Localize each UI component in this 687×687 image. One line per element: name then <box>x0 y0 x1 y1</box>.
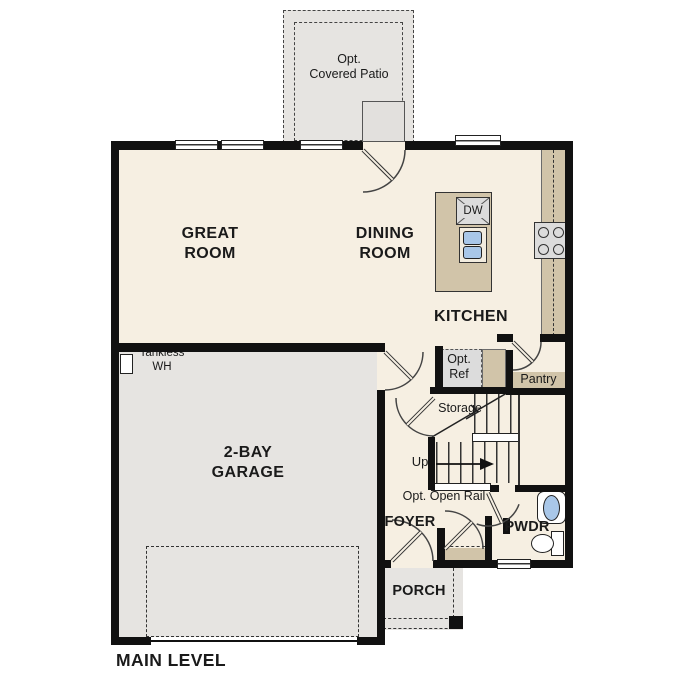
tankless-wh-icon <box>120 354 133 374</box>
wall-ref-left <box>435 346 443 389</box>
kitchen-label: KITCHEN <box>428 307 514 327</box>
closet-door <box>445 511 483 549</box>
floor-plan: Opt. Covered Patio DW Opt. Ref Pantry <box>0 0 687 687</box>
wall-garage-top <box>111 343 385 352</box>
sink-bowl <box>543 495 560 521</box>
wall-pantry-bottom <box>506 388 573 395</box>
pantry-counter <box>482 349 506 389</box>
gap-garage-door <box>377 352 385 390</box>
wall-pwdr-top <box>515 485 573 492</box>
dishwasher-icon: DW <box>456 197 490 225</box>
patio-landing <box>362 101 405 142</box>
window <box>221 140 264 150</box>
window <box>175 140 218 150</box>
sink-basin <box>463 246 482 259</box>
wall-pantry-left <box>506 350 513 392</box>
wall-right <box>565 141 573 568</box>
patio-door <box>363 150 405 192</box>
burner-icon <box>538 244 549 255</box>
garage-door-line <box>148 640 359 642</box>
dishwasher-label: DW <box>461 204 485 218</box>
wall-garage-bottom-right <box>357 637 385 645</box>
storage-label: Storage <box>432 401 488 416</box>
patio-label: Opt. Covered Patio <box>288 52 410 83</box>
opt-open-rail-label: Opt. Open Rail <box>396 489 492 504</box>
porch-post <box>449 616 463 629</box>
wall-front-left <box>377 560 391 568</box>
wall-ref-bottom <box>430 387 510 394</box>
burner-icon <box>538 227 549 238</box>
porch-roof-dash-v <box>453 568 454 618</box>
burner-icon <box>553 244 564 255</box>
wall-garage-bottom-left <box>111 637 151 645</box>
storage-door <box>396 398 434 436</box>
kitchen-sink-icon <box>459 227 487 263</box>
pantry-door <box>513 342 541 370</box>
great-room-label: GREAT ROOM <box>150 224 270 263</box>
toilet-bowl <box>531 534 554 553</box>
porch-roof-dash-h1 <box>383 618 453 619</box>
window <box>497 559 531 569</box>
plan-title: MAIN LEVEL <box>116 650 276 671</box>
dining-room-label: DINING ROOM <box>325 224 445 263</box>
garage-entry-door <box>385 352 423 390</box>
gap-front-door <box>391 560 433 568</box>
garage-door-outline <box>146 546 359 637</box>
up-arrow-icon <box>432 455 498 473</box>
wall-rail-stub <box>490 485 499 492</box>
wall-stair-left <box>428 437 435 490</box>
foyer-label: FOYER <box>384 514 436 532</box>
porch-label: PORCH <box>390 583 448 601</box>
wall-left <box>111 141 119 645</box>
sink-basin <box>463 231 482 245</box>
window <box>455 135 501 146</box>
garage-label: 2-BAY GARAGE <box>193 443 303 482</box>
stair-edge-line <box>518 390 520 486</box>
gap-patio-door <box>363 141 405 150</box>
wall-pantry-top-left <box>497 334 513 342</box>
window <box>300 140 343 150</box>
wall-foyer-closet <box>437 528 445 568</box>
powder-label: PWDR <box>503 519 551 537</box>
burner-icon <box>553 227 564 238</box>
stove-icon <box>534 222 567 259</box>
wall-pantry-top-right <box>540 334 573 342</box>
